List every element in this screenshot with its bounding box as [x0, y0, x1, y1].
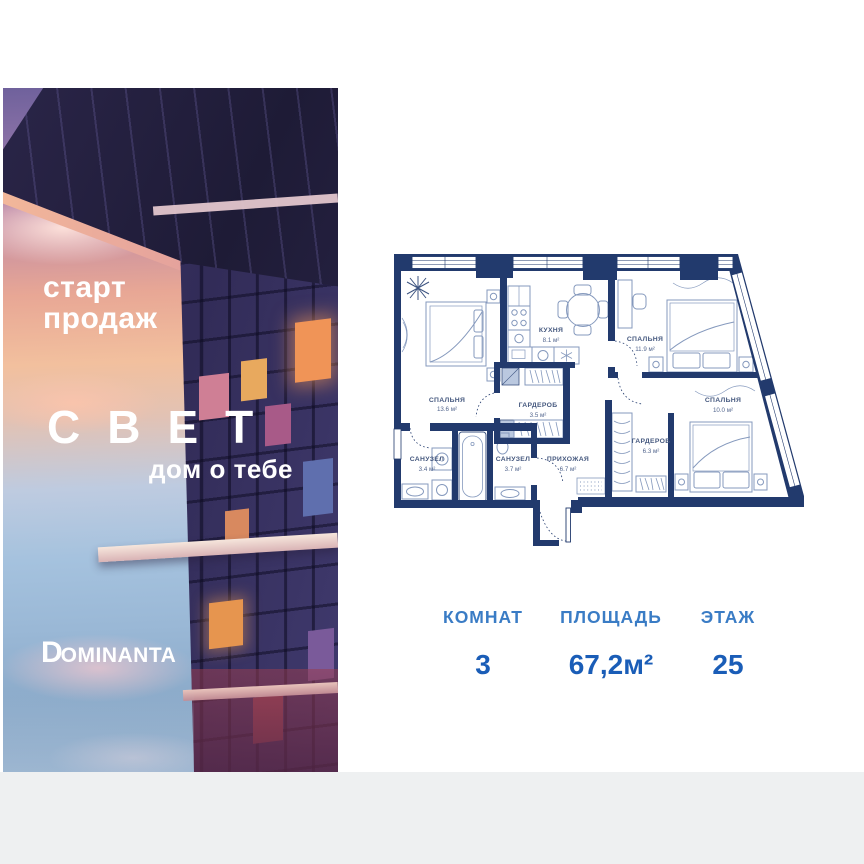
room-area: 3.7 м²	[505, 466, 522, 473]
project-tagline: дом о тебе	[149, 454, 293, 485]
stat-area: ПЛОЩАДЬ 67,2м²	[560, 607, 662, 681]
room-label: СПАЛЬНЯ	[627, 336, 663, 343]
room-label: ПРИХОЖАЯ	[547, 456, 589, 463]
stat-rooms-value: 3	[443, 649, 523, 681]
room-label: САНУЗЕЛ	[410, 456, 444, 463]
room-area: 8.1 м²	[543, 337, 560, 344]
room-area: 6.3 м²	[643, 448, 660, 455]
developer-logo: D OMINANTA	[41, 640, 176, 666]
entrance-door	[566, 508, 571, 542]
lit-window	[303, 458, 333, 517]
lit-window	[295, 318, 331, 382]
stat-area-value: 67,2м²	[560, 649, 662, 681]
start-sales-line2: продаж	[43, 303, 157, 334]
floor-plan: СПАЛЬНЯ 13.6 м² КУХНЯ 8.1 м² СПАЛЬНЯ 11.…	[390, 250, 810, 550]
stat-rooms: КОМНАТ 3	[443, 607, 523, 681]
stat-floor-label: ЭТАЖ	[701, 607, 756, 628]
room-label: СПАЛЬНЯ	[429, 397, 465, 404]
stat-floor: ЭТАЖ 25	[701, 607, 756, 681]
developer-logo-rest: OMINANTA	[61, 645, 177, 666]
room-label: ГАРДЕРОБ	[632, 438, 671, 445]
lit-window	[241, 358, 267, 401]
room-label: КУХНЯ	[539, 327, 563, 334]
stat-area-label: ПЛОЩАДЬ	[560, 607, 662, 628]
building-photo: старт продаж СВЕТ дом о тебе D OMINANTA	[3, 88, 338, 772]
project-name: СВЕТ	[47, 400, 280, 454]
room-area: 10.0 м²	[713, 407, 733, 414]
start-sales-text: старт продаж	[43, 272, 157, 334]
water-shimmer	[3, 690, 194, 772]
room-area: 13.6 м²	[437, 406, 457, 413]
listing-card: старт продаж СВЕТ дом о тебе D OMINANTA	[0, 0, 864, 864]
room-area: 3.4 м²	[419, 466, 436, 473]
stat-rooms-label: КОМНАТ	[443, 607, 523, 628]
developer-logo-d: D	[41, 640, 63, 666]
room-area: 3.5 м²	[530, 412, 547, 419]
lit-window	[209, 599, 243, 649]
start-sales-line1: старт	[43, 272, 157, 303]
room-label: СПАЛЬНЯ	[705, 397, 741, 404]
room-label: САНУЗЕЛ	[496, 456, 530, 463]
bottom-strip	[0, 772, 864, 864]
room-area: 11.9 м²	[635, 346, 655, 353]
room-area: 6.7 м²	[560, 466, 577, 473]
room-label: ГАРДЕРОБ	[519, 402, 558, 409]
stat-floor-value: 25	[701, 649, 756, 681]
